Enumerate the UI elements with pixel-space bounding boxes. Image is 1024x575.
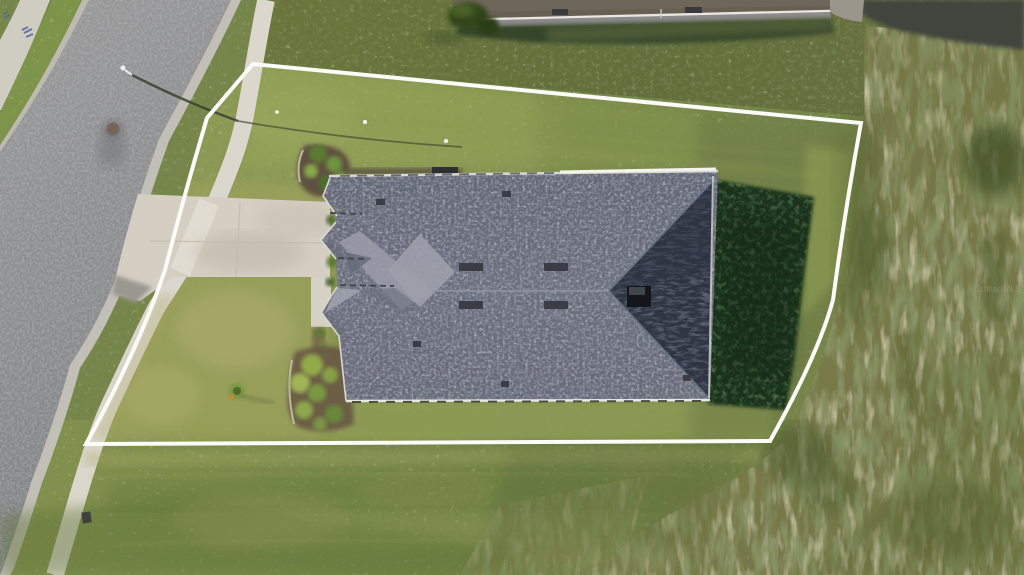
- svg-text:Stellar MLS: Stellar MLS: [975, 284, 1022, 294]
